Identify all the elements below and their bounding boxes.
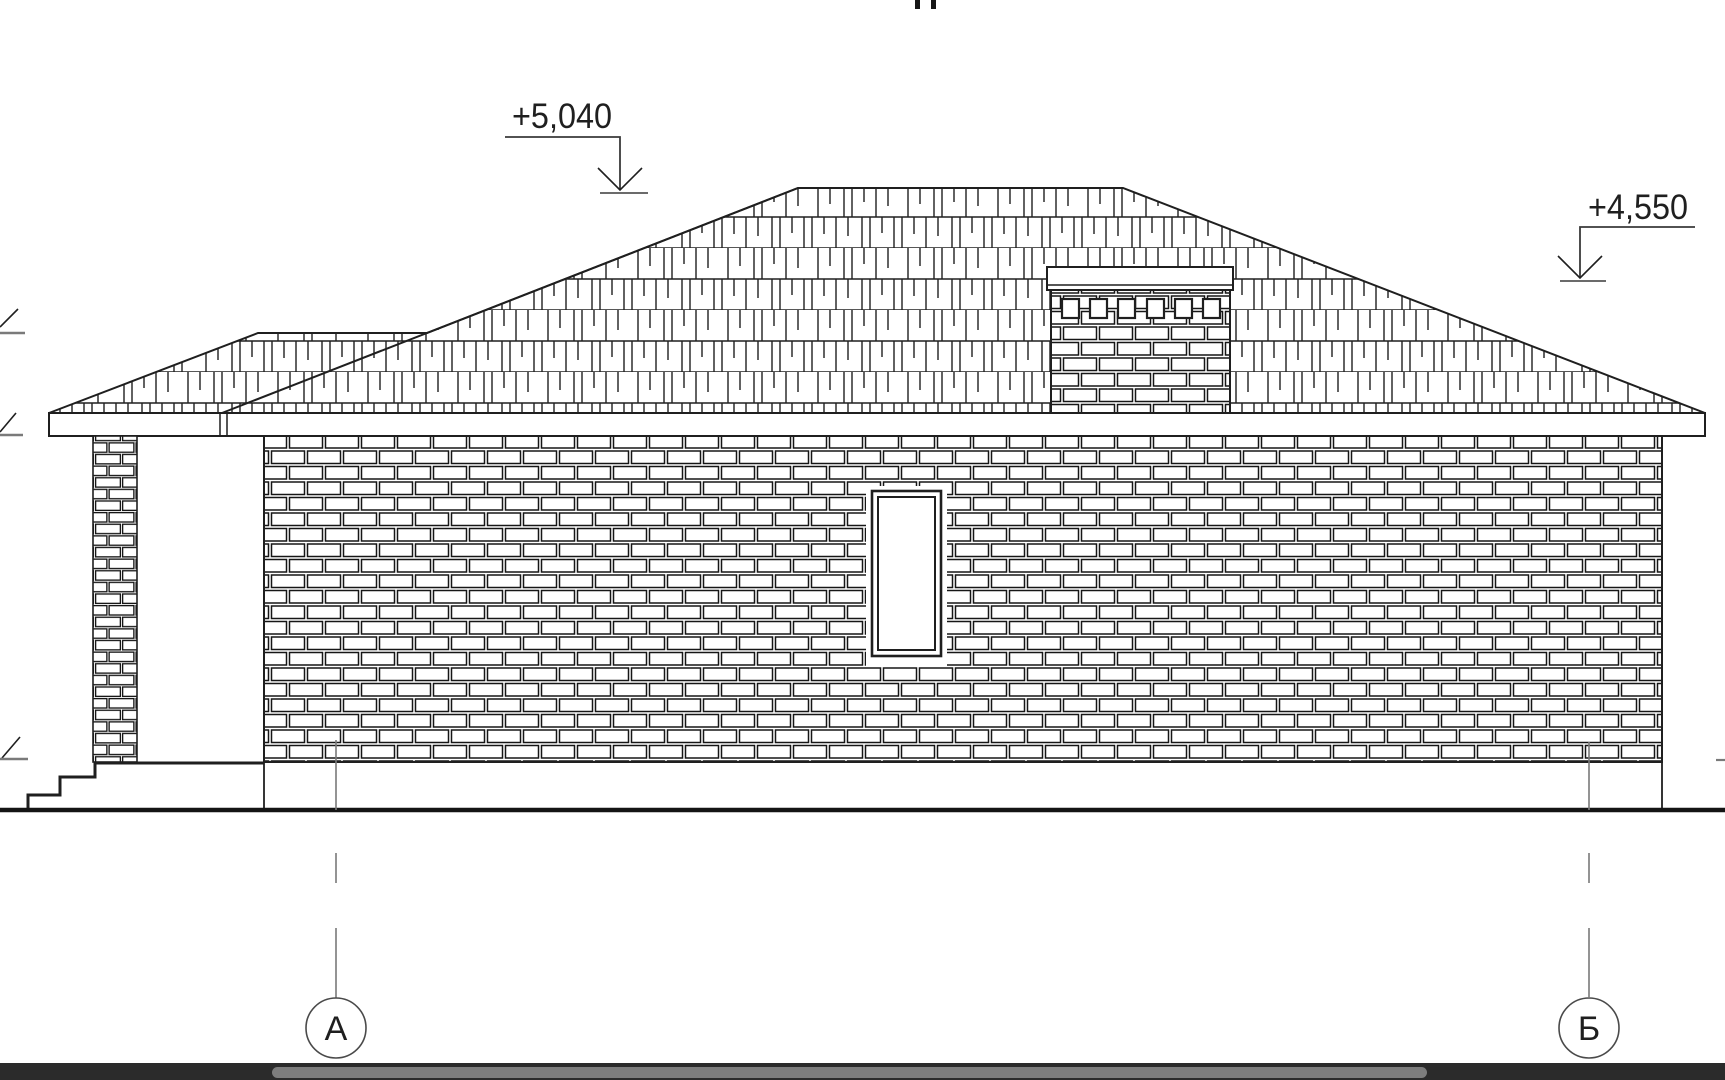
fascia-band — [49, 413, 1705, 436]
chimney — [1047, 267, 1233, 413]
clipped-text-fragment — [931, 0, 936, 9]
elevation-leader — [505, 137, 620, 190]
chimney-vent — [1203, 299, 1220, 318]
elevation-marker-ridge: +5,040 — [505, 97, 648, 193]
roof-outline — [49, 188, 1705, 413]
elevation-value: +5,040 — [512, 97, 612, 136]
window-frame-inner — [878, 497, 935, 650]
level-mark-fragment-floor — [0, 737, 28, 759]
clipped-text-fragment — [915, 0, 920, 9]
roof — [49, 188, 1705, 413]
porch-steps — [28, 763, 264, 810]
viewer-canvas: +5,040 +4,550 А Б — [0, 0, 1725, 1080]
chimney-cap — [1047, 267, 1233, 290]
main-wall — [264, 436, 1662, 762]
fascia — [49, 413, 1705, 436]
level-mark-fragment-top — [0, 309, 25, 333]
level-mark-fragment-eave — [0, 413, 23, 435]
elevation-marker-eave: +4,550 — [1558, 188, 1695, 281]
horizontal-scrollbar-thumb[interactable] — [272, 1067, 1427, 1078]
axis-b: Б — [1559, 742, 1619, 1058]
chimney-vent — [1175, 299, 1192, 318]
chimney-vent — [1090, 299, 1107, 318]
porch-column — [93, 436, 137, 762]
axis-label: А — [325, 1010, 348, 1048]
axis-label: Б — [1578, 1010, 1600, 1048]
window — [866, 486, 947, 666]
chimney-vent — [1118, 299, 1135, 318]
elevation-leader — [1580, 227, 1695, 278]
horizontal-scrollbar-track[interactable] — [0, 1063, 1725, 1080]
elevation-value: +4,550 — [1588, 188, 1688, 227]
chimney-vent — [1147, 299, 1164, 318]
elevation-drawing: +5,040 +4,550 А Б — [0, 0, 1725, 1063]
chimney-vent — [1062, 299, 1079, 318]
axis-a: А — [306, 740, 366, 1058]
